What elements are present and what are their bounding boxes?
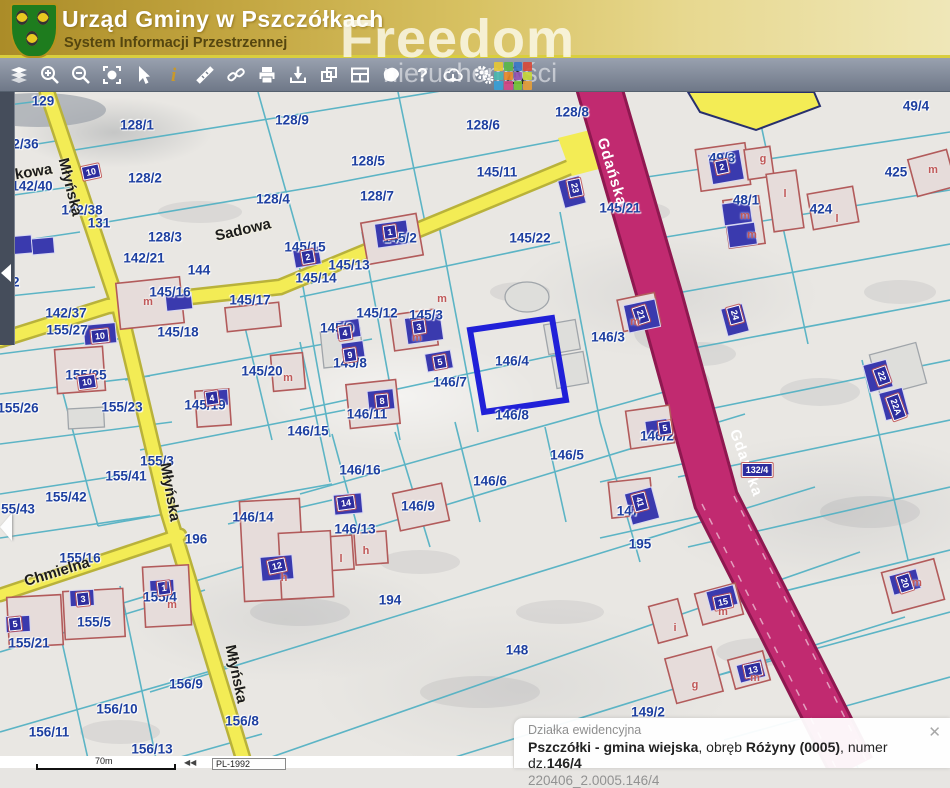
parcel-label: 155/27 <box>46 323 87 338</box>
building-letter: l <box>835 213 838 225</box>
building-letter: m <box>412 332 422 344</box>
parcel-label: 146/8 <box>495 408 529 423</box>
parcel-label: 128/5 <box>351 154 385 169</box>
parcel-label: 145/16 <box>149 285 190 300</box>
parcel-info-panel: Działka ewidencyjna Pszczółki - gmina wi… <box>514 718 950 768</box>
address-badge: 24 <box>726 304 744 325</box>
parcel-label: 128/7 <box>360 189 394 204</box>
address-badge: 3 <box>76 591 90 606</box>
pagination-arrows[interactable]: ◀◀ <box>184 758 196 767</box>
warning-button[interactable] <box>499 60 530 90</box>
parcel-label: 128/6 <box>466 118 500 133</box>
address-badge: 2 <box>714 159 730 175</box>
building-letter: l <box>339 553 342 565</box>
parcel-label: 48/1 <box>733 193 759 208</box>
address-badge: 14 <box>336 495 356 511</box>
address-badge: 4 <box>205 390 220 406</box>
building-letter: m <box>740 210 750 222</box>
building-letter: m <box>747 229 757 241</box>
info-panel-main: Pszczółki - gmina wiejska, obręb Różyny … <box>528 739 938 771</box>
building-letter: m <box>718 606 728 618</box>
building-letter: l <box>783 188 786 200</box>
info-button[interactable]: i <box>158 60 189 90</box>
parcel-label: 194 <box>379 593 402 608</box>
building-letter: m <box>928 164 938 176</box>
collapsed-side-panel[interactable] <box>0 92 15 345</box>
app-header: Urząd Gminy w Pszczółkach System Informa… <box>0 0 950 58</box>
parcel-label: 425 <box>885 165 908 180</box>
zoom-out-button[interactable] <box>65 60 96 90</box>
parcel-label: 128/2 <box>128 171 162 186</box>
street-label: Młyńska <box>222 643 251 704</box>
parcel-label: 145/22 <box>509 231 550 246</box>
parcel-label: 128/4 <box>256 192 290 207</box>
close-icon[interactable]: ✕ <box>928 723 941 741</box>
street-label: Chmielna <box>22 554 92 590</box>
building-letter: m <box>283 372 293 384</box>
parcel-label: 146/6 <box>473 474 507 489</box>
parcel-label: 156/8 <box>225 714 259 729</box>
building-letter: g <box>692 679 699 691</box>
download-marker-button[interactable] <box>282 60 313 90</box>
street-label: Sadowa <box>213 215 272 244</box>
parcel-label: 145/11 <box>477 165 518 180</box>
polygon-button[interactable] <box>375 60 406 90</box>
address-badge: 4 <box>338 325 353 341</box>
parcel-label: 146/5 <box>550 448 584 463</box>
address-badge: 2 <box>300 249 315 265</box>
info-district: Różyny (0005) <box>746 739 840 755</box>
page-title: Urząd Gminy w Pszczółkach <box>62 6 384 33</box>
parcel-label: 146/7 <box>433 375 467 390</box>
commune-crest-logo <box>10 3 58 58</box>
zoom-in-button[interactable] <box>34 60 65 90</box>
svg-text:?: ? <box>417 65 428 85</box>
address-badge: 22A <box>885 393 907 421</box>
scale-label: 70m <box>95 756 113 766</box>
panel-collapse-arrow-icon <box>1 264 11 282</box>
parcel-label: 424 <box>810 202 833 217</box>
parcel-label: 155/41 <box>105 469 146 484</box>
parcel-label: 128/1 <box>120 118 154 133</box>
parcel-label: 145/20 <box>241 364 282 379</box>
building-letter: g <box>760 153 767 165</box>
link-button[interactable] <box>220 60 251 90</box>
zoom-extent-button[interactable] <box>96 60 127 90</box>
building-letter: h <box>281 572 288 584</box>
windows-button[interactable] <box>313 60 344 90</box>
address-badge: 8 <box>375 393 389 408</box>
address-badge: 10 <box>81 163 102 180</box>
settings-gears-button[interactable] <box>468 60 499 90</box>
parcel-label: 156/10 <box>96 702 137 717</box>
layers-button[interactable] <box>3 60 34 90</box>
address-badge: 10 <box>90 328 109 344</box>
parcel-label: 146/9 <box>401 499 435 514</box>
crs-select[interactable]: PL-1992 <box>212 758 286 770</box>
parcel-label: 155/23 <box>101 400 142 415</box>
parcel-label: 144 <box>188 263 211 278</box>
parcel-label: 146/4 <box>495 354 529 369</box>
parcel-label: 146/3 <box>591 330 625 345</box>
left-edge-expand-arrow-icon[interactable] <box>0 513 12 541</box>
building-letter: h <box>363 545 370 557</box>
street-label: Młyńska <box>55 156 86 218</box>
building-letter: m <box>437 293 447 305</box>
parcel-label: 128/9 <box>275 113 309 128</box>
parcel-label: 146/15 <box>287 424 328 439</box>
print-button[interactable] <box>251 60 282 90</box>
info-panel-title: Działka ewidencyjna <box>528 723 938 737</box>
parcel-label: 155/42 <box>45 490 86 505</box>
building-letter: m <box>750 672 760 684</box>
parcel-label: 195 <box>629 537 652 552</box>
parcel-label: 128/8 <box>555 105 589 120</box>
parcel-label: 155/21 <box>8 636 49 651</box>
building-letter: l <box>164 580 167 592</box>
info-municipality: Pszczółki - gmina wiejska <box>528 739 698 755</box>
building-letter: m <box>912 577 922 589</box>
parcel-label: 129 <box>32 94 55 109</box>
parcel-label: 156/13 <box>131 742 172 757</box>
layout-button[interactable] <box>344 60 375 90</box>
info-parcel-number: 146/4 <box>547 755 582 771</box>
parcel-label: 131 <box>88 216 111 231</box>
status-bar: 70m ◀◀ PL-1992 <box>0 756 513 768</box>
parcel-label: 49/4 <box>903 99 929 114</box>
building-letter: m <box>143 296 153 308</box>
address-badge: 5 <box>432 354 447 370</box>
address-badge: 132/4 <box>742 463 773 477</box>
address-badge: 9 <box>343 347 358 363</box>
building-letter: i <box>673 622 676 634</box>
parcel-label: 145/14 <box>295 271 336 286</box>
cloud-download-button[interactable] <box>437 60 468 90</box>
parcel-label: 142/21 <box>123 251 164 266</box>
parcel-label: 146/16 <box>339 463 380 478</box>
help-button[interactable]: ? <box>406 60 437 90</box>
parcel-label: 155/5 <box>77 615 111 630</box>
road-name-label: Gdańska <box>594 136 631 208</box>
address-badge: 1 <box>383 224 398 240</box>
parcel-label: 156/11 <box>29 725 70 740</box>
map-canvas[interactable]: 129128/1128/9128/6128/849/4142/36142/401… <box>0 92 950 768</box>
parcel-label: 148 <box>506 643 529 658</box>
address-badge: 22 <box>872 365 891 387</box>
parcel-label: 146/11 <box>347 407 388 422</box>
street-label: Młyńska <box>156 461 183 522</box>
pointer-button[interactable] <box>127 60 158 90</box>
parcel-label: 155/26 <box>0 401 39 416</box>
parcel-label: 156/9 <box>169 677 203 692</box>
parcel-label: 145/12 <box>356 306 397 321</box>
parcel-label: 142/37 <box>45 306 86 321</box>
parcel-label: 145/18 <box>157 325 198 340</box>
parcel-label: 128/3 <box>148 230 182 245</box>
page-subtitle: System Informacji Przestrzennej <box>64 35 287 51</box>
address-badge: 10 <box>77 374 97 390</box>
address-badge: 5 <box>8 616 22 631</box>
building-letter: m <box>630 316 640 328</box>
map-toolbar: i ? <box>0 58 950 92</box>
building-letter: m <box>167 599 177 611</box>
parcel-label: 146/14 <box>232 510 273 525</box>
map-labels-layer: 129128/1128/9128/6128/849/4142/36142/401… <box>0 92 950 768</box>
parcel-identifier-code: 220406_2.0005.146/4 <box>528 773 938 788</box>
parcel-label: 145/17 <box>229 293 270 308</box>
parcel-label: 196 <box>185 532 208 547</box>
address-badge: 5 <box>658 420 673 436</box>
svg-text:i: i <box>171 65 177 86</box>
address-badge: 23 <box>566 178 583 199</box>
measure-button[interactable] <box>189 60 220 90</box>
parcel-label: 146/13 <box>334 522 375 537</box>
